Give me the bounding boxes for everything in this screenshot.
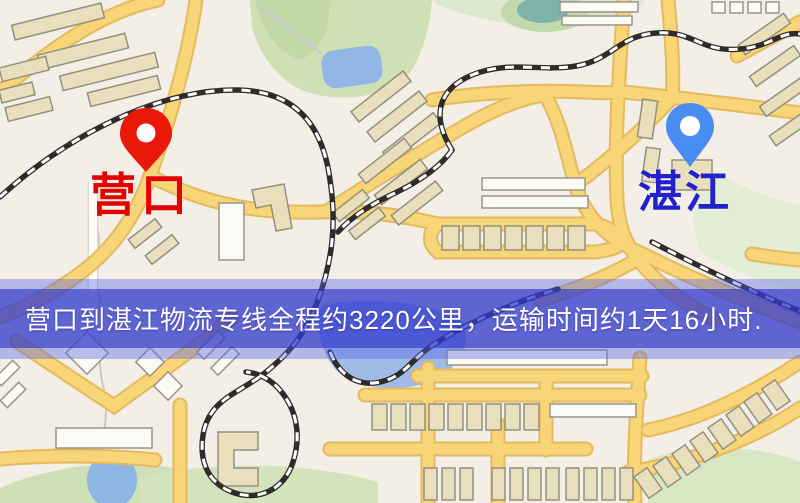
map-screenshot: 营口 湛江 营口到湛江物流专线全程约3220公里，运输时间约1天16小时. (0, 0, 800, 503)
zhanjiang-label: 湛江 (638, 171, 732, 215)
route-banner: 营口到湛江物流专线全程约3220公里，运输时间约1天16小时. (0, 279, 800, 359)
route-banner-text: 营口到湛江物流专线全程约3220公里，运输时间约1天16小时. (0, 300, 762, 337)
yingkou-label: 营口 (90, 172, 192, 218)
yingkou-pin-icon[interactable] (118, 104, 174, 174)
map-canvas[interactable] (0, 0, 800, 503)
zhanjiang-pin-icon[interactable] (664, 99, 716, 169)
route-banner-band: 营口到湛江物流专线全程约3220公里，运输时间约1天16小时. (0, 289, 800, 348)
